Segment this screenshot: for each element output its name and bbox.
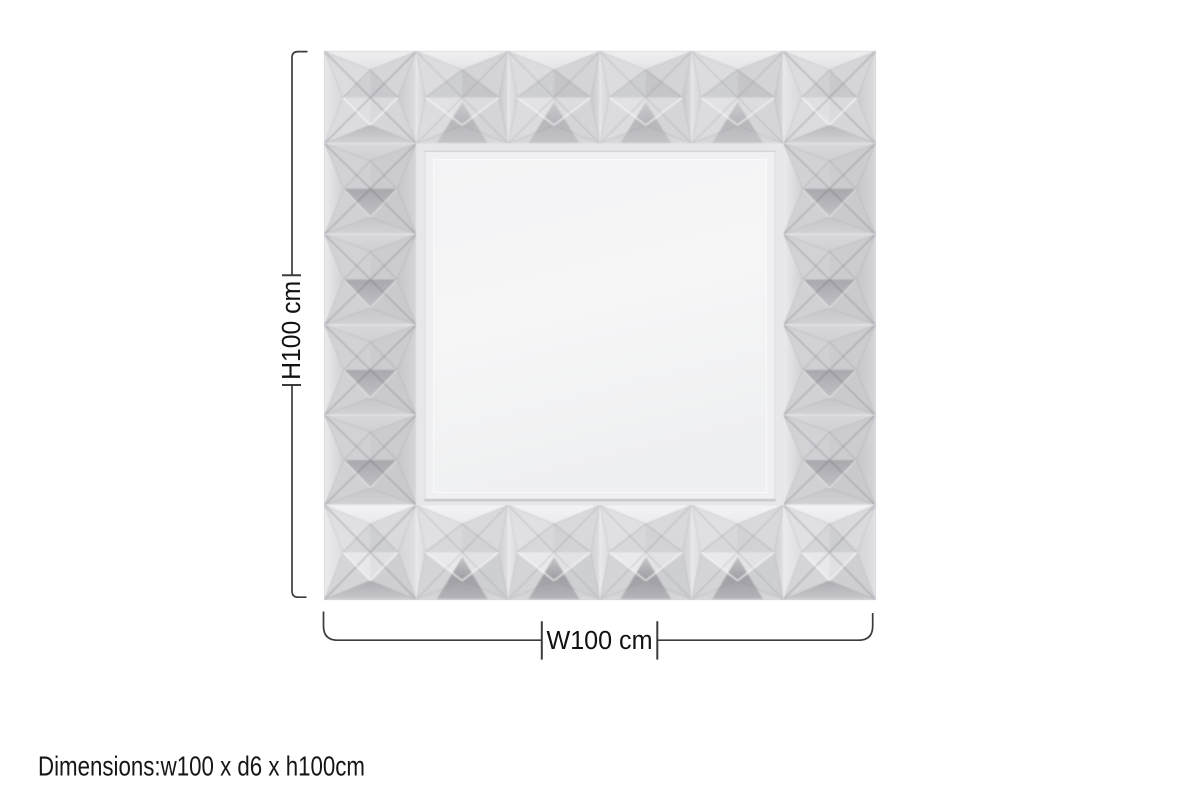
svg-text:H100 cm: H100 cm <box>278 281 306 380</box>
svg-text:W100 cm: W100 cm <box>547 627 653 655</box>
svg-text:Dimensions:w100 x d6 x h100cm: Dimensions:w100 x d6 x h100cm <box>38 751 365 782</box>
